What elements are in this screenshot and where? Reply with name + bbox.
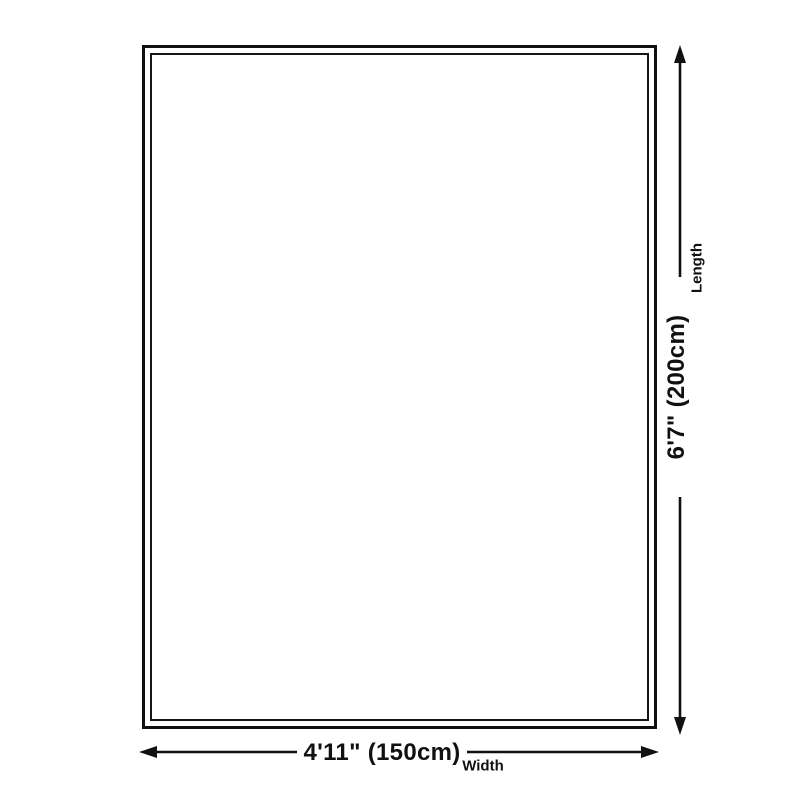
length-axis-label: Length [689,243,706,293]
arrow-down-icon [674,717,686,735]
rug-outline-inner [150,53,649,721]
arrow-right-icon [641,746,659,758]
size-diagram: 6'7" (200cm) Length 4'11" (150cm) Width [0,0,800,800]
rug-outline-outer [142,45,657,729]
width-value-label: 4'11" (150cm) [303,739,460,767]
length-value-label: 6'7" (200cm) [663,315,691,460]
width-axis-label: Width [462,758,504,775]
